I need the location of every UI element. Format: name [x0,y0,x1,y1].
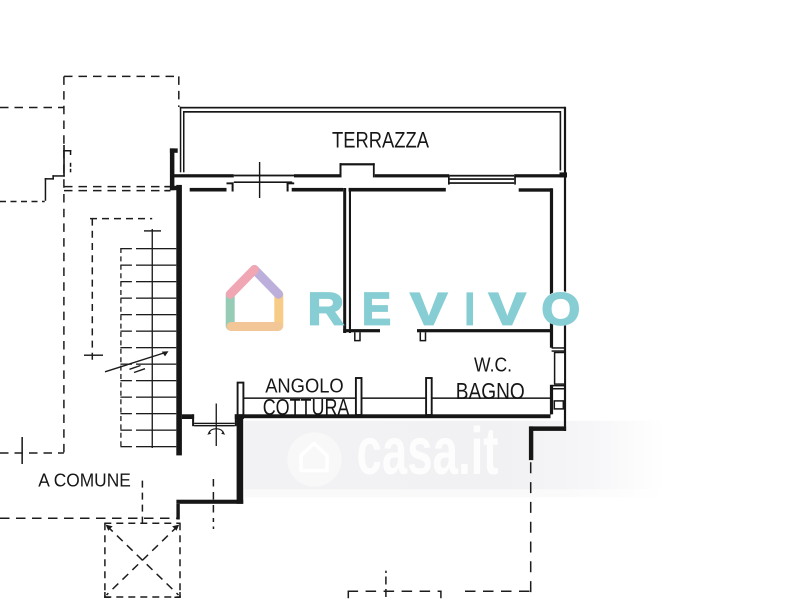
svg-text:E: E [362,284,391,335]
svg-text:A COMUNE: A COMUNE [38,470,131,491]
svg-text:TERRAZZA: TERRAZZA [332,128,429,153]
svg-text:O: O [541,284,580,335]
svg-text:R: R [308,284,345,335]
svg-text:COTTURA: COTTURA [263,394,350,420]
svg-text:BAGNO: BAGNO [456,378,525,404]
svg-text:W.C.: W.C. [474,355,512,377]
svg-text:V: V [410,284,448,335]
svg-text:V: V [489,284,527,335]
svg-text:I: I [465,284,475,335]
svg-text:casa.it: casa.it [357,414,499,489]
